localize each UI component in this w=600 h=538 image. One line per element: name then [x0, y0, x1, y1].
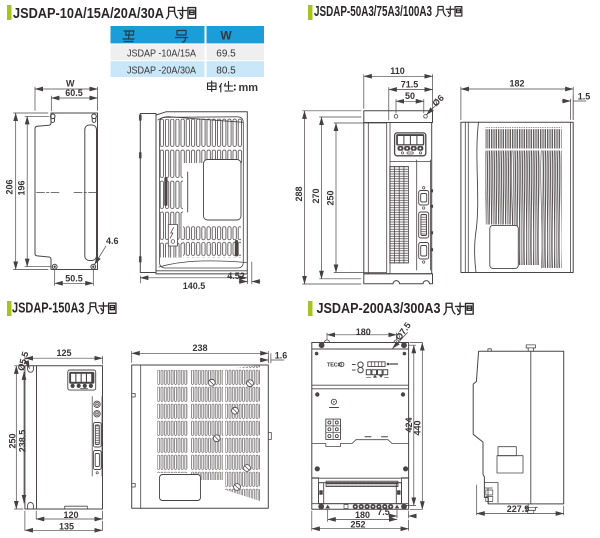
svg-text:JSDAP-10A/15A/20A/30A: JSDAP-10A/15A/20A/30A — [13, 5, 164, 22]
svg-text:W: W — [220, 29, 232, 43]
svg-text:Ø5.5: Ø5.5 — [16, 351, 31, 372]
svg-text:250: 250 — [326, 190, 336, 205]
svg-text:196: 196 — [16, 180, 26, 195]
svg-text:JSDAP-50A3/75A3/100A3: JSDAP-50A3/75A3/100A3 — [314, 3, 432, 20]
svg-text:Ø7.5: Ø7.5 — [393, 320, 412, 342]
svg-text:140.5: 140.5 — [183, 281, 206, 291]
svg-text:180: 180 — [356, 327, 371, 337]
svg-text:mm: mm — [239, 82, 259, 94]
svg-text:1.5: 1.5 — [578, 92, 591, 102]
svg-text:120: 120 — [63, 510, 78, 520]
svg-text:4.6: 4.6 — [106, 236, 119, 246]
svg-text:JSDAP -20A/30A: JSDAP -20A/30A — [127, 65, 196, 77]
svg-text:JSDAP -10A/15A: JSDAP -10A/15A — [127, 48, 196, 60]
svg-text:227.9: 227.9 — [507, 504, 530, 514]
svg-text:270: 270 — [311, 188, 321, 203]
svg-text:206: 206 — [5, 179, 15, 194]
svg-text:288: 288 — [294, 186, 304, 201]
svg-text:440: 440 — [412, 420, 422, 435]
svg-text:4.52: 4.52 — [227, 271, 245, 281]
svg-text:250: 250 — [8, 433, 18, 448]
svg-text:182: 182 — [509, 79, 524, 89]
svg-text:60.5: 60.5 — [65, 88, 83, 98]
svg-text:125: 125 — [56, 348, 71, 358]
svg-text:71.5: 71.5 — [401, 79, 419, 89]
svg-text:JSDAP-200A3/300A3: JSDAP-200A3/300A3 — [317, 300, 441, 317]
svg-text:135: 135 — [59, 521, 74, 531]
svg-text:238.5: 238.5 — [18, 430, 28, 453]
svg-text:7.5: 7.5 — [377, 507, 390, 517]
svg-text:1.6: 1.6 — [275, 350, 288, 360]
svg-text:80.5: 80.5 — [216, 66, 236, 77]
svg-text:50.5: 50.5 — [65, 274, 83, 284]
svg-text:50: 50 — [405, 91, 415, 101]
svg-text:252: 252 — [350, 520, 365, 530]
svg-text:JSDAP-150A3: JSDAP-150A3 — [12, 300, 85, 317]
svg-text:W: W — [66, 79, 75, 89]
svg-text:238: 238 — [192, 343, 207, 353]
svg-text:110: 110 — [390, 66, 405, 76]
svg-text:69.5: 69.5 — [216, 49, 236, 60]
